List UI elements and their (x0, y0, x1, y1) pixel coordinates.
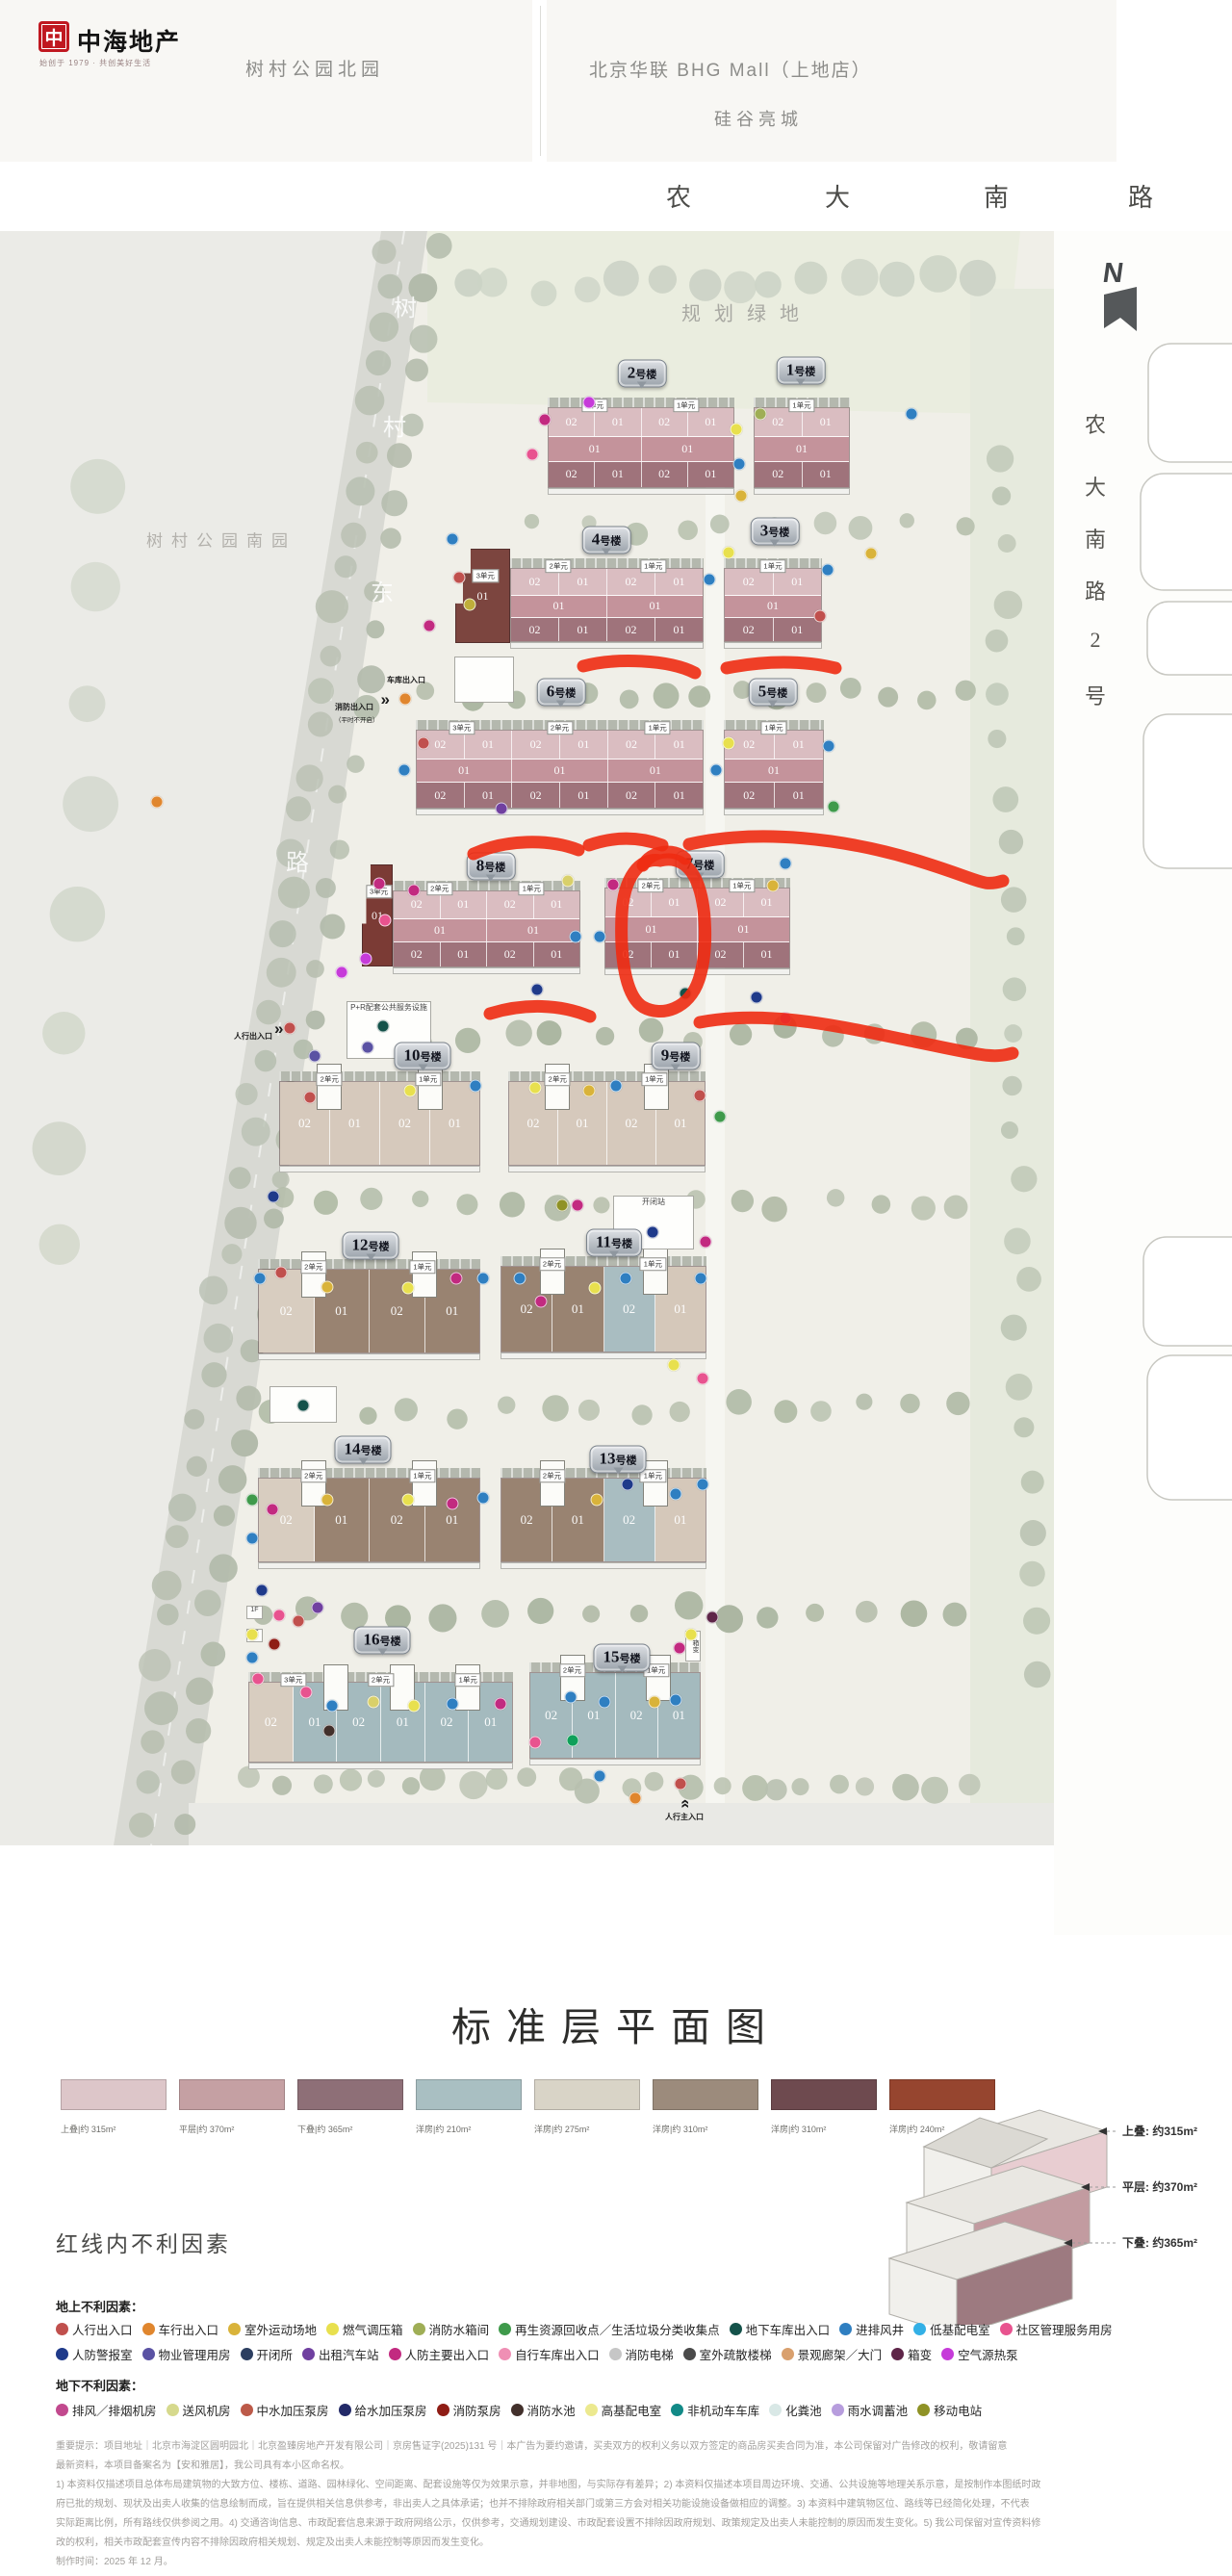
band: 01 (725, 760, 823, 784)
disclaimer-line: 制作时间：2025 年 12 月。 (56, 2553, 1201, 2572)
swatch-label: 下叠|约 365m² (297, 2123, 403, 2135)
map-marker-dot (828, 801, 840, 813)
unit-tag: 1单元 (409, 1260, 435, 1274)
unit-tag: 2单元 (539, 1257, 565, 1271)
factor-label: 化粪池 (785, 2401, 822, 2419)
map-marker-dot (535, 1296, 548, 1308)
unit-tag: 1单元 (645, 721, 671, 734)
band: 02010201 (549, 462, 733, 487)
map-marker-dot (622, 1479, 634, 1491)
map-marker-dot (583, 1085, 596, 1097)
band: 02010201 (501, 1267, 706, 1352)
map-marker-dot (629, 1792, 642, 1805)
swatch-color (61, 2079, 167, 2110)
unit-tag: 2单元 (638, 879, 664, 892)
factor-空气源热泵: 空气源热泵 (941, 2345, 1018, 2363)
map-marker-dot (572, 1199, 584, 1212)
band: 02010201 (605, 889, 789, 917)
factor-dot (839, 2323, 852, 2335)
unit-cell: 01 (688, 408, 733, 436)
factor-label: 人防警报室 (72, 2345, 133, 2363)
map-marker-dot (368, 1696, 380, 1709)
unit-cell: 01 (744, 942, 789, 967)
map-marker-dot (464, 599, 476, 611)
unit-cell: 02 (605, 942, 652, 967)
factor-dot (913, 2323, 926, 2335)
factor-化粪池: 化粪池 (769, 2401, 822, 2419)
map-marker-dot (723, 547, 735, 559)
unit-tag: 3单元 (473, 569, 499, 582)
factor-dot (339, 2404, 351, 2416)
unit-tag: 1单元 (640, 559, 666, 573)
unit-tag: 1单元 (455, 1673, 481, 1687)
map-marker-dot (495, 1698, 507, 1711)
factor-label: 箱变 (908, 2345, 932, 2363)
map-marker-dot (697, 1479, 709, 1491)
disclaimer-line: 1) 本资料仅描述项目总体布局建筑物的大致方位、楼栋、道路、园林绿化、空间距离、… (56, 2476, 1201, 2495)
stair-core (643, 1460, 668, 1507)
plinth (548, 488, 734, 495)
factor-dot (56, 2323, 68, 2335)
map-marker-dot (447, 1698, 459, 1711)
map-marker-dot (594, 1770, 606, 1783)
disclaimer-line: 府已批的规划、现状及出卖人收集的信息绘制而成，旨在提供相关信息供参考，非出卖人之… (56, 2495, 1201, 2514)
map-marker-dot (408, 885, 421, 897)
unit-cell: 02 (394, 942, 441, 966)
map-marker-dot (674, 1642, 686, 1655)
factor-label: 空气源热泵 (958, 2345, 1018, 2363)
disclaimer-line: 实际距离比例，所有路线仅供参阅之用。4) 交通咨询信息、市政配套信息来源于政府网… (56, 2514, 1201, 2534)
map-marker-dot (567, 1735, 579, 1747)
map-marker-dot (297, 1400, 310, 1412)
band: 02010201 (549, 408, 733, 437)
factor-label: 人防主要出入口 (405, 2345, 490, 2363)
unit-tag: 1单元 (641, 1072, 667, 1086)
facility-box (454, 657, 514, 703)
unit-cell: 01 (608, 760, 703, 783)
factors-title: 红线内不利因素 (56, 2226, 231, 2258)
factor-label: 室外疏散楼梯 (700, 2345, 772, 2363)
factor-社区管理服务用房: 社区管理服务用房 (1000, 2320, 1113, 2338)
band: 0101 (605, 917, 789, 941)
map-marker-dot (418, 737, 430, 750)
map-marker-dot (246, 1652, 259, 1664)
unit-tag: 2单元 (317, 1072, 343, 1086)
building-label-3号楼: 3号楼 (751, 518, 800, 546)
band: 0201 (725, 731, 823, 760)
roof-gallery (510, 558, 704, 568)
diagram-annotation: 上叠: 约315m² (1122, 2124, 1197, 2138)
building-8号楼: 02010201010102010201 (393, 890, 580, 967)
swatch-color (416, 2079, 522, 2110)
plinth (724, 809, 824, 815)
map-marker-dot (610, 1080, 623, 1093)
legend-swatch-上叠: 上叠|约 315m² (61, 2079, 167, 2135)
legend-swatch-平层: 平层|约 370m² (179, 2079, 285, 2135)
building-label-7号楼: 7号楼 (676, 851, 725, 879)
unit-cell: 01 (725, 596, 821, 617)
factor-移动电站: 移动电站 (917, 2401, 982, 2419)
band: 0201 (725, 618, 821, 641)
roof-gallery (548, 398, 734, 407)
factor-dot (832, 2404, 844, 2416)
unit-cell: 02 (607, 618, 655, 641)
entrance-车库出入口: 车库出入口 (387, 670, 425, 687)
swatch-label: 洋房|约 275m² (534, 2123, 640, 2135)
map-marker-dot (780, 1013, 792, 1025)
factor-dot (941, 2348, 954, 2360)
unit-cell: 02 (698, 942, 744, 967)
map-marker-dot (256, 1584, 269, 1597)
map-marker-dot (706, 1611, 719, 1624)
building-label-12号楼: 12号楼 (343, 1232, 399, 1260)
band: 02010201 (605, 942, 789, 967)
factor-label: 消防水箱间 (429, 2320, 490, 2338)
factor-label: 车行出入口 (159, 2320, 219, 2338)
unit-cell: 01 (655, 569, 703, 595)
unit-cell: 01 (559, 618, 607, 641)
band: 02010201 (259, 1479, 479, 1561)
factor-dot (326, 2323, 339, 2335)
building-label-2号楼: 2号楼 (618, 360, 667, 388)
map-marker-dot (450, 1273, 463, 1285)
band: 02010201 (511, 618, 703, 641)
building-6号楼: 020102010201010101020102010201 (416, 730, 704, 809)
disclaimer-line: 改的权利，相关市政配套宣传内容不排除因政府相关规划、规定及出卖人未能控制等原因而… (56, 2534, 1201, 2553)
map-marker-dot (304, 1092, 317, 1104)
unit-cell: 01 (595, 408, 641, 436)
factor-label: 室外运动场地 (244, 2320, 317, 2338)
unit-cell: 02 (607, 569, 655, 595)
unit-cell: 01 (803, 408, 850, 436)
band: 01 (755, 437, 849, 461)
map-marker-dot (814, 610, 827, 623)
unit-cell: 02 (549, 462, 595, 487)
unit-cell: 02 (605, 889, 652, 916)
map-marker-dot (336, 966, 348, 979)
unit-cell: 01 (607, 596, 703, 617)
map-marker-dot (822, 564, 834, 577)
map-marker-dot (293, 1615, 305, 1628)
page-title: 标准层平面图 (0, 1995, 1232, 2052)
factor-label: 消防电梯 (626, 2345, 674, 2363)
factor-排风／排烟机房: 排风／排烟机房 (56, 2401, 157, 2419)
map-marker-dot (252, 1673, 265, 1686)
map-marker-dot (408, 1700, 421, 1713)
factor-label: 移动电站 (934, 2401, 982, 2419)
factor-dot (56, 2348, 68, 2360)
legend-swatch-下叠: 下叠|约 365m² (297, 2079, 403, 2135)
factor-label: 再生资源回收点／生活垃圾分类收集点 (515, 2320, 720, 2338)
map-marker-dot (562, 875, 575, 888)
unit-tag: 2单元 (426, 882, 452, 895)
entrance-消防出入口: 消防出入口（平时不开启）» (335, 697, 379, 724)
unit-cell: 01 (803, 462, 850, 487)
factor-label: 送风机房 (183, 2401, 231, 2419)
band: 0201 (755, 462, 849, 487)
factor-dot (730, 2323, 742, 2335)
map-marker-dot (246, 1629, 259, 1641)
factor-label: 出租汽车站 (319, 2345, 379, 2363)
plinth (754, 488, 850, 495)
unit-cell: 01 (441, 891, 488, 918)
map-marker-dot (312, 1602, 324, 1614)
factor-中水加压泵房: 中水加压泵房 (241, 2401, 329, 2419)
factor-label: 景观廊架／大门 (798, 2345, 883, 2363)
factor-label: 高基配电室 (602, 2401, 662, 2419)
flyer-page: 中 中海地产 始创于 1979 · 共创美好生活 树村公园北园 北京华联 BHG… (0, 0, 1232, 2576)
building-label-15号楼: 15号楼 (594, 1644, 651, 1672)
unit-cell: 02 (608, 731, 656, 759)
unit-tag: 1单元 (788, 399, 814, 412)
building-label-16号楼: 16号楼 (354, 1627, 411, 1655)
plinth (604, 968, 790, 975)
factor-label: 中水加压泵房 (257, 2401, 329, 2419)
stair-core (412, 1251, 437, 1298)
map-marker-dot (823, 740, 835, 753)
factor-高基配电室: 高基配电室 (585, 2401, 662, 2419)
map-marker-dot (254, 1273, 267, 1285)
map-marker-dot (731, 424, 743, 436)
factor-dot (241, 2348, 253, 2360)
unit-cell: 01 (511, 596, 607, 617)
plinth (416, 809, 704, 815)
map-marker-dot (670, 1694, 682, 1707)
band: 02010201 (530, 1673, 700, 1758)
factor-label: 进排风井 (856, 2320, 904, 2338)
unit-cell: 02 (511, 569, 559, 595)
plinth (279, 1166, 480, 1172)
unit-tag: 1单元 (673, 399, 699, 412)
unit-cell: 01 (534, 942, 580, 966)
map-marker-dot (360, 953, 372, 966)
map-marker-dot (404, 1085, 417, 1097)
building-label-5号楼: 5号楼 (749, 679, 798, 707)
factor-给水加压泵房: 给水加压泵房 (339, 2401, 427, 2419)
map-marker-dot (755, 408, 767, 421)
map-marker-dot (695, 1273, 707, 1285)
factor-dot (228, 2323, 241, 2335)
map-marker-dot (607, 879, 620, 891)
unit-cell: 01 (725, 760, 823, 783)
factor-景观廊架／大门: 景观廊架／大门 (782, 2345, 883, 2363)
unit-cell: 02 (755, 462, 803, 487)
map-marker-dot (700, 1236, 712, 1249)
unit-cell: 01 (755, 437, 849, 460)
map-marker-dot (477, 1273, 490, 1285)
map-marker-dot (377, 1020, 390, 1033)
stair-core (545, 1064, 570, 1110)
unit-cell: 01 (487, 919, 579, 941)
map-marker-dot (402, 1494, 415, 1507)
unit-tag: 2单元 (547, 721, 573, 734)
map-marker-dot (583, 397, 596, 409)
map-marker-dot (423, 620, 436, 632)
disclaimer: 重要提示：项目地址｜北京市海淀区圆明园北｜北京盈臻房地产开发有限公司｜京房售证字… (56, 2437, 1201, 2572)
factor-人防警报室: 人防警报室 (56, 2345, 133, 2363)
unit-cell: 01 (465, 731, 513, 759)
unit-tag: 1单元 (760, 721, 786, 734)
map-marker-dot (733, 458, 746, 471)
stair-core (317, 1064, 342, 1110)
unit-tag: 1单元 (640, 1257, 666, 1271)
factor-label: 排风／排烟机房 (72, 2401, 157, 2419)
legend-swatch-洋房: 洋房|约 275m² (534, 2079, 640, 2135)
building-15号楼: 02010201 (529, 1672, 701, 1759)
map-marker-dot (321, 1281, 334, 1294)
factor-再生资源回收点／生活垃圾分类收集点: 再生资源回收点／生活垃圾分类收集点 (499, 2320, 720, 2338)
map-marker-dot (529, 1737, 542, 1749)
factor-dot (671, 2404, 683, 2416)
map-marker-dot (300, 1687, 313, 1699)
unit-cell: 01 (775, 783, 824, 808)
factor-燃气调压箱: 燃气调压箱 (326, 2320, 403, 2338)
map-marker-dot (780, 858, 792, 870)
band: 0201 (755, 408, 849, 437)
diagram-annotation: 平层: 约370m² (1122, 2179, 1197, 2194)
map-marker-dot (268, 1191, 280, 1203)
factor-出租汽车站: 出租汽车站 (302, 2345, 379, 2363)
building-label-14号楼: 14号楼 (335, 1436, 392, 1464)
building-label-10号楼: 10号楼 (395, 1043, 451, 1070)
map-marker-dot (402, 1282, 415, 1295)
plinth (258, 1562, 480, 1569)
building-label-9号楼: 9号楼 (652, 1043, 701, 1070)
band: 0101 (511, 596, 703, 618)
unit-cell: 01 (655, 783, 703, 808)
unit-cell: 02 (417, 783, 465, 808)
factor-label: 地下车库出入口 (746, 2320, 831, 2338)
unit-tag: 1单元 (519, 882, 545, 895)
map-marker-dot (680, 988, 692, 1000)
map-marker-dot (735, 490, 748, 502)
band: 020102010201 (417, 731, 703, 760)
band: 02010201 (394, 891, 579, 919)
map-marker-dot (751, 992, 763, 1004)
factor-label: 非机动车车库 (687, 2401, 759, 2419)
factor-dot (585, 2404, 598, 2416)
factor-dot (499, 2348, 511, 2360)
roof-gallery (258, 1468, 480, 1478)
map-marker-dot (373, 878, 386, 890)
building-11号楼: 02010201 (500, 1266, 706, 1352)
map-marker-dot (398, 764, 411, 777)
factor-dot (56, 2404, 68, 2416)
entrance-人行主入口: »人行主入口 (665, 1798, 704, 1822)
building-9号楼: 02010201 (508, 1081, 706, 1166)
unit-cell: 02 (549, 408, 595, 436)
stair-core (540, 1249, 565, 1295)
building-1号楼: 0201010201 (754, 407, 850, 488)
unit-cell: 01 (652, 889, 698, 916)
unit-tag: 2单元 (545, 1072, 571, 1086)
factor-箱变: 箱变 (891, 2345, 932, 2363)
map-marker-dot (246, 1494, 259, 1507)
factor-label: 消防泵房 (453, 2401, 501, 2419)
unit-cell: 02 (249, 1683, 294, 1762)
building-12号楼: 02010201 (258, 1269, 480, 1353)
factor-label: 雨水调蓄池 (848, 2401, 909, 2419)
building-7号楼: 02010201010102010201 (604, 888, 790, 968)
unit-cell: 01 (652, 942, 698, 967)
unit-cell: 01 (688, 462, 733, 487)
unit-cell: 02 (487, 942, 534, 966)
factor-非机动车车库: 非机动车车库 (671, 2401, 759, 2419)
map-marker-dot (275, 1267, 288, 1279)
unit-cell: 01 (595, 462, 641, 487)
factor-低基配电室: 低基配电室 (913, 2320, 990, 2338)
unit-cell: 01 (534, 891, 580, 918)
factor-label: 给水加压泵房 (355, 2401, 427, 2419)
map-marker-dot (273, 1610, 286, 1622)
unit-cell: 02 (511, 618, 559, 641)
unit-cell: 01 (774, 569, 822, 595)
swatch-label: 洋房|约 310m² (653, 2123, 758, 2135)
unit-cell: 01 (549, 437, 642, 460)
map-marker-dot (906, 408, 918, 421)
above-ground-heading: 地上不利因素： (56, 2297, 143, 2315)
unit-tag: 2单元 (300, 1260, 326, 1274)
map-marker-dot (284, 1022, 296, 1035)
plinth (529, 1759, 701, 1765)
map-marker-dot (246, 1533, 259, 1545)
building-label-11号楼: 11号楼 (586, 1229, 642, 1257)
entrance-人行出入口: 人行出入口» (234, 1026, 272, 1043)
map-marker-dot (599, 1696, 611, 1709)
unit-cell: 01 (744, 889, 789, 916)
factor-消防水池: 消防水池 (511, 2401, 576, 2419)
band: 02010201 (509, 1082, 705, 1165)
factor-dot (437, 2404, 449, 2416)
unit-tag: 2单元 (546, 559, 572, 573)
above-ground-legend-row1: 人行出入口车行出入口室外运动场地燃气调压箱消防水箱间再生资源回收点／生活垃圾分类… (56, 2320, 1232, 2338)
factor-label: 社区管理服务用房 (1016, 2320, 1113, 2338)
factor-室外运动场地: 室外运动场地 (228, 2320, 317, 2338)
plinth (248, 1763, 513, 1769)
factor-label: 燃气调压箱 (343, 2320, 403, 2338)
factor-dot (241, 2404, 253, 2416)
factor-车行出入口: 车行出入口 (142, 2320, 219, 2338)
map-marker-dot (514, 1273, 526, 1285)
unit-cell: 01 (559, 569, 607, 595)
unit-cell: 01 (394, 919, 487, 941)
map-marker-dot (767, 880, 780, 892)
map-marker-dot (556, 1199, 569, 1212)
plinth (510, 642, 704, 649)
unit-cell: 01 (560, 783, 608, 808)
map-marker-dot (447, 533, 459, 546)
map-marker-dot (865, 548, 878, 560)
map-marker-dot (447, 1498, 459, 1510)
unit-tag: 2单元 (300, 1469, 326, 1482)
swatch-label: 上叠|约 315m² (61, 2123, 167, 2135)
below-ground-legend-row: 排风／排烟机房送风机房中水加压泵房给水加压泵房消防泵房消防水池高基配电室非机动车… (56, 2401, 1232, 2419)
map-marker-dot (269, 1638, 281, 1651)
plinth (258, 1353, 480, 1360)
swatch-label: 洋房|约 210m² (416, 2123, 522, 2135)
building-2号楼: 02010201010102010201 (548, 407, 734, 488)
band: 02010201 (259, 1270, 479, 1352)
map-marker-dot (668, 1359, 680, 1372)
map-marker-dot (477, 1492, 490, 1505)
unit-cell: 02 (642, 408, 688, 436)
diagram-annotation: 下叠: 约365m² (1122, 2235, 1197, 2250)
map-marker-dot (379, 914, 392, 927)
unit-cell: 01 (698, 917, 789, 940)
map-marker-dot (710, 764, 723, 777)
building-3号楼: 0201010201 (724, 568, 822, 642)
unit-cell: 01 (655, 618, 703, 641)
